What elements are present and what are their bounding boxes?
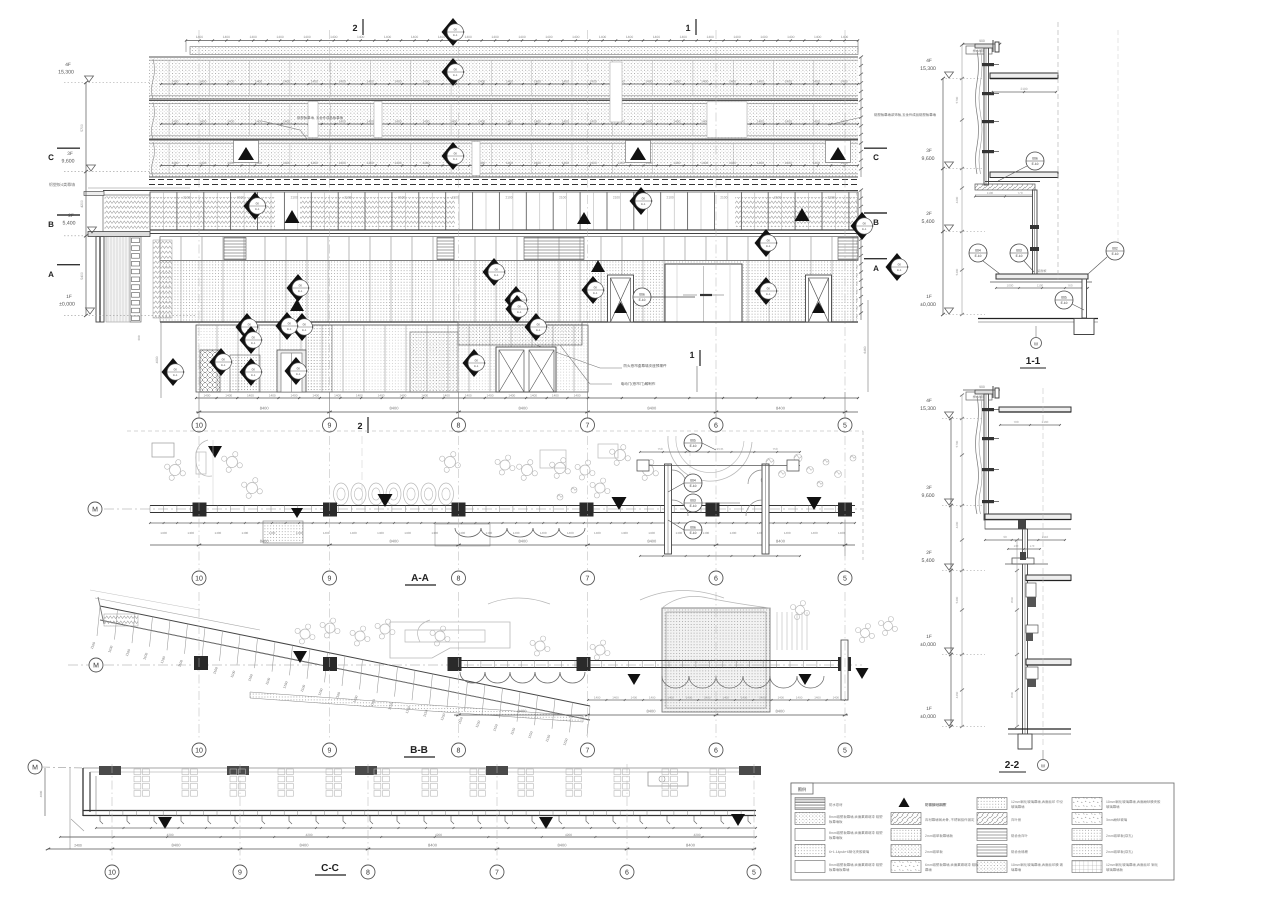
svg-text:板幕墙板: 板幕墙板 — [829, 820, 843, 824]
svg-text:石材幕墙钢龙骨, 不锈钢挂件固定: 石材幕墙钢龙骨, 不锈钢挂件固定 — [925, 818, 975, 822]
svg-text:1400: 1400 — [196, 35, 204, 39]
svg-text:1400: 1400 — [356, 394, 363, 398]
svg-text:1400: 1400 — [594, 696, 601, 700]
svg-text:A: A — [48, 270, 54, 279]
svg-text:6460: 6460 — [863, 346, 867, 353]
svg-text:1400: 1400 — [431, 531, 438, 535]
svg-text:2100: 2100 — [505, 196, 512, 200]
svg-text:1400: 1400 — [562, 120, 569, 124]
svg-text:E-1: E-1 — [298, 289, 303, 293]
svg-text:750: 750 — [855, 306, 859, 311]
svg-text:1400: 1400 — [680, 35, 688, 39]
svg-text:1400: 1400 — [813, 161, 820, 165]
svg-text:006: 006 — [1032, 157, 1038, 161]
svg-text:1F: 1F — [926, 294, 932, 300]
svg-text:1400: 1400 — [411, 35, 419, 39]
svg-text:1400: 1400 — [291, 394, 298, 398]
svg-text:1400: 1400 — [552, 394, 559, 398]
svg-text:1400: 1400 — [283, 120, 290, 124]
svg-text:M: M — [93, 663, 99, 670]
svg-text:1400: 1400 — [626, 35, 634, 39]
svg-text:板幕墙板: 板幕墙板 — [829, 836, 843, 840]
svg-text:600: 600 — [137, 335, 141, 340]
svg-text:750: 750 — [855, 314, 859, 319]
svg-text:8: 8 — [457, 576, 461, 583]
svg-text:1400: 1400 — [214, 531, 221, 535]
svg-text:1400: 1400 — [704, 696, 711, 700]
svg-text:1400: 1400 — [785, 120, 792, 124]
svg-text:玻璃幕墙板: 玻璃幕墙板 — [1106, 868, 1124, 872]
svg-text:2100: 2100 — [291, 196, 298, 200]
svg-text:1400: 1400 — [673, 120, 680, 124]
svg-text:E-1: E-1 — [453, 73, 458, 77]
svg-text:1400: 1400 — [785, 80, 792, 84]
svg-text:10: 10 — [195, 748, 203, 755]
svg-text:8400: 8400 — [260, 406, 270, 411]
svg-text:8: 8 — [366, 870, 370, 877]
svg-text:E-10: E-10 — [1032, 162, 1039, 166]
svg-text:1400: 1400 — [491, 35, 499, 39]
svg-text:1400: 1400 — [813, 80, 820, 84]
svg-text:1400: 1400 — [707, 35, 715, 39]
svg-text:06: 06 — [495, 268, 499, 272]
svg-text:2400: 2400 — [74, 844, 82, 848]
svg-text:4200: 4200 — [565, 833, 572, 837]
svg-text:1400: 1400 — [160, 531, 167, 535]
svg-text:1400: 1400 — [350, 531, 357, 535]
svg-text:E-1: E-1 — [296, 372, 301, 376]
svg-text:1F: 1F — [926, 634, 932, 640]
svg-text:130: 130 — [1014, 544, 1019, 548]
svg-text:1400: 1400 — [394, 120, 401, 124]
svg-text:2100: 2100 — [183, 196, 190, 200]
svg-text:1400: 1400 — [667, 696, 674, 700]
svg-text:±0,000: ±0,000 — [920, 714, 936, 720]
svg-text:1400: 1400 — [247, 394, 254, 398]
svg-text:E-1: E-1 — [766, 292, 771, 296]
svg-text:750: 750 — [855, 207, 859, 212]
svg-text:1400: 1400 — [599, 35, 607, 39]
svg-text:1400: 1400 — [303, 35, 311, 39]
svg-text:1400: 1400 — [813, 120, 820, 124]
svg-text:E-10: E-10 — [1112, 252, 1119, 256]
svg-text:005: 005 — [1061, 296, 1067, 300]
svg-text:1400: 1400 — [757, 120, 764, 124]
svg-text:06: 06 — [303, 323, 307, 327]
svg-text:8400: 8400 — [518, 709, 528, 714]
svg-text:9: 9 — [238, 870, 242, 877]
svg-text:1400: 1400 — [330, 35, 338, 39]
svg-text:1400: 1400 — [187, 531, 194, 535]
svg-text:1400: 1400 — [283, 161, 290, 165]
svg-text:8400: 8400 — [686, 843, 696, 848]
svg-text:1400: 1400 — [421, 394, 428, 398]
svg-text:750: 750 — [855, 289, 859, 294]
svg-text:2-2: 2-2 — [1005, 760, 1020, 771]
svg-text:1000: 1000 — [1007, 284, 1014, 288]
svg-text:06: 06 — [297, 367, 301, 371]
svg-text:1400: 1400 — [323, 531, 330, 535]
svg-text:1400: 1400 — [357, 35, 365, 39]
svg-text:1400: 1400 — [334, 394, 341, 398]
svg-text:2: 2 — [357, 421, 362, 431]
svg-text:铝塑板幕墙装饰板,五金件成品铝塑板幕墙: 铝塑板幕墙装饰板,五金件成品铝塑板幕墙 — [874, 113, 937, 117]
svg-text:06: 06 — [248, 323, 252, 327]
svg-text:8400: 8400 — [776, 539, 786, 544]
svg-text:±0,000: ±0,000 — [59, 302, 75, 308]
svg-text:003: 003 — [690, 499, 696, 503]
svg-text:1400: 1400 — [399, 394, 406, 398]
svg-text:2mm铝单板: 2mm铝单板 — [925, 850, 943, 854]
svg-text:E-1: E-1 — [302, 328, 307, 332]
svg-text:1400: 1400 — [227, 120, 234, 124]
svg-text:1400: 1400 — [269, 531, 276, 535]
svg-text:3560: 3560 — [1010, 596, 1014, 603]
svg-text:1400: 1400 — [443, 394, 450, 398]
svg-text:5: 5 — [752, 870, 756, 877]
svg-text:1400: 1400 — [621, 531, 628, 535]
svg-text:06: 06 — [288, 322, 292, 326]
svg-text:±0,000: ±0,000 — [920, 302, 936, 308]
svg-text:铝合金百叶: 铝合金百叶 — [1011, 834, 1029, 838]
svg-text:06: 06 — [594, 286, 598, 290]
svg-text:4200: 4200 — [80, 200, 84, 208]
svg-text:004: 004 — [975, 249, 981, 253]
svg-text:1400: 1400 — [673, 80, 680, 84]
svg-text:1400: 1400 — [534, 161, 541, 165]
svg-text:1400: 1400 — [296, 531, 303, 535]
svg-text:5,400: 5,400 — [63, 221, 76, 227]
svg-text:12mm钢化玻璃幕墙,表面丝印 中空: 12mm钢化玻璃幕墙,表面丝印 中空 — [1011, 800, 1064, 804]
svg-text:9: 9 — [328, 423, 332, 430]
svg-text:1400: 1400 — [367, 80, 374, 84]
svg-text:4200: 4200 — [955, 196, 959, 203]
svg-text:1400: 1400 — [612, 696, 619, 700]
svg-text:铝塑板4类幕墙: 铝塑板4类幕墙 — [49, 182, 75, 187]
svg-text:C-C: C-C — [321, 863, 339, 874]
svg-text:铝塑板: 铝塑板 — [1037, 269, 1046, 273]
svg-text:C: C — [873, 153, 879, 162]
svg-text:9,600: 9,600 — [922, 493, 935, 499]
svg-text:06: 06 — [518, 305, 522, 309]
svg-text:750: 750 — [772, 447, 777, 451]
svg-text:1400: 1400 — [203, 394, 210, 398]
svg-text:E-1: E-1 — [517, 310, 522, 314]
svg-text:1400: 1400 — [645, 80, 652, 84]
svg-text:1400: 1400 — [478, 80, 485, 84]
svg-text:1400: 1400 — [506, 120, 513, 124]
svg-text:006: 006 — [690, 526, 696, 530]
svg-text:1400: 1400 — [458, 531, 465, 535]
svg-text:玻璃幕墙: 玻璃幕墙 — [1106, 805, 1120, 809]
svg-text:750: 750 — [855, 240, 859, 245]
svg-text:B: B — [48, 220, 54, 229]
svg-text:06: 06 — [642, 197, 646, 201]
svg-text:1400: 1400 — [311, 161, 318, 165]
svg-text:8mm铝塑板幕墙,表面氟碳喀漆 铝塑: 8mm铝塑板幕墙,表面氟碳喀漆 铝塑 — [829, 863, 883, 867]
svg-text:06: 06 — [767, 287, 771, 291]
svg-text:06: 06 — [299, 284, 303, 288]
svg-text:06: 06 — [898, 263, 902, 267]
svg-text:06: 06 — [252, 368, 256, 372]
svg-text:2100: 2100 — [344, 196, 351, 200]
svg-text:8400: 8400 — [428, 843, 438, 848]
svg-text:8400: 8400 — [390, 539, 400, 544]
svg-text:E-10: E-10 — [690, 531, 697, 535]
svg-text:4F: 4F — [926, 398, 932, 404]
svg-text:1-1: 1-1 — [1026, 356, 1041, 367]
svg-text:5400: 5400 — [955, 596, 959, 603]
svg-text:防雷接地装置: 防雷接地装置 — [925, 802, 947, 807]
svg-text:B: B — [873, 218, 879, 227]
svg-text:E-1: E-1 — [897, 268, 902, 272]
svg-text:6mm铝塑板幕墙,表面氟碳喀漆 铝板: 6mm铝塑板幕墙,表面氟碳喀漆 铝板 — [925, 863, 979, 867]
svg-text:8400: 8400 — [776, 709, 786, 714]
svg-text:1400: 1400 — [223, 35, 231, 39]
svg-text:1400: 1400 — [574, 394, 581, 398]
svg-text:004: 004 — [690, 479, 696, 483]
svg-text:15,300: 15,300 — [58, 70, 74, 76]
svg-text:8400: 8400 — [647, 709, 657, 714]
svg-text:006: 006 — [639, 293, 645, 297]
svg-text:1400: 1400 — [741, 696, 748, 700]
svg-text:E-1: E-1 — [251, 373, 256, 377]
svg-text:E-1: E-1 — [474, 364, 479, 368]
svg-text:1400: 1400 — [759, 696, 766, 700]
svg-text:2100: 2100 — [720, 196, 727, 200]
svg-text:1400: 1400 — [378, 394, 385, 398]
svg-text:3500: 3500 — [1010, 691, 1014, 698]
svg-text:3F: 3F — [926, 485, 932, 491]
svg-text:4460: 4460 — [955, 691, 959, 698]
svg-text:750: 750 — [855, 256, 859, 261]
svg-text:3F: 3F — [926, 148, 932, 154]
svg-text:2mm铝单板(穿孔): 2mm铝单板(穿孔) — [1106, 850, 1133, 854]
svg-text:1400: 1400 — [171, 161, 178, 165]
svg-text:1400: 1400 — [649, 696, 656, 700]
svg-text:1400: 1400 — [730, 531, 737, 535]
svg-text:1400: 1400 — [478, 120, 485, 124]
svg-text:2160: 2160 — [1042, 420, 1049, 424]
svg-text:1400: 1400 — [513, 531, 520, 535]
svg-text:1400: 1400 — [617, 161, 624, 165]
svg-text:1400: 1400 — [242, 531, 249, 535]
svg-text:1F: 1F — [66, 294, 72, 300]
svg-text:2100: 2100 — [667, 196, 674, 200]
svg-text:1400: 1400 — [534, 80, 541, 84]
svg-text:E-1: E-1 — [453, 33, 458, 37]
svg-text:1400: 1400 — [648, 531, 655, 535]
svg-text:5: 5 — [843, 423, 847, 430]
svg-text:1400: 1400 — [283, 80, 290, 84]
svg-text:1400: 1400 — [814, 35, 822, 39]
svg-text:12mm钢化玻璃幕墙,表面丝印 钢化: 12mm钢化玻璃幕墙,表面丝印 钢化 — [1106, 863, 1159, 867]
svg-text:1400: 1400 — [572, 35, 580, 39]
svg-text:6+1.14pvb+6钢化夹胶玻璃: 6+1.14pvb+6钢化夹胶玻璃 — [829, 850, 870, 854]
svg-text:百叶窗: 百叶窗 — [1011, 818, 1022, 822]
svg-text:板幕墙板幕墙: 板幕墙板幕墙 — [829, 868, 850, 872]
svg-text:A: A — [873, 264, 879, 273]
svg-text:1400: 1400 — [701, 80, 708, 84]
svg-text:1: 1 — [685, 23, 690, 33]
svg-text:8: 8 — [457, 423, 461, 430]
svg-text:750: 750 — [855, 273, 859, 278]
svg-text:2100: 2100 — [452, 196, 459, 200]
svg-text:1400: 1400 — [645, 120, 652, 124]
svg-text:2mm铝单板(穿孔): 2mm铝单板(穿孔) — [1106, 834, 1133, 838]
svg-text:06: 06 — [454, 152, 458, 156]
svg-text:1400: 1400 — [757, 80, 764, 84]
svg-text:15,300: 15,300 — [920, 66, 936, 72]
svg-text:1400: 1400 — [796, 696, 803, 700]
svg-text:1400: 1400 — [171, 80, 178, 84]
svg-text:5: 5 — [843, 748, 847, 755]
svg-text:770: 770 — [1017, 191, 1022, 195]
svg-text:1400: 1400 — [339, 80, 346, 84]
svg-text:2F: 2F — [68, 213, 74, 219]
svg-text:2F: 2F — [926, 211, 932, 217]
svg-text:06: 06 — [537, 323, 541, 327]
svg-text:4000: 4000 — [155, 356, 159, 363]
svg-text:1400: 1400 — [590, 161, 597, 165]
svg-text:E-1: E-1 — [255, 207, 260, 211]
svg-text:E-10: E-10 — [690, 484, 697, 488]
svg-text:1400: 1400 — [518, 35, 526, 39]
svg-text:1400: 1400 — [787, 35, 795, 39]
svg-text:4200: 4200 — [435, 833, 442, 837]
svg-text:1400: 1400 — [225, 394, 232, 398]
svg-text:铝塑板幕墙, 五金件成品板幕墙: 铝塑板幕墙, 五金件成品板幕墙 — [297, 116, 344, 120]
svg-text:9: 9 — [328, 576, 332, 583]
svg-text:8400: 8400 — [390, 406, 400, 411]
svg-text:1400: 1400 — [562, 80, 569, 84]
svg-text:1400: 1400 — [703, 531, 710, 535]
svg-text:700: 700 — [1013, 420, 1018, 424]
svg-text:2100: 2100 — [613, 196, 620, 200]
svg-text:1400: 1400 — [653, 35, 661, 39]
svg-text:7: 7 — [586, 748, 590, 755]
svg-text:1400: 1400 — [339, 120, 346, 124]
svg-text:E-10: E-10 — [639, 298, 646, 302]
svg-text:8mm铝塑板幕墙,表面氟碳喀漆 铝塑: 8mm铝塑板幕墙,表面氟碳喀漆 铝塑 — [829, 815, 883, 819]
svg-text:5700: 5700 — [955, 440, 959, 447]
svg-text:7: 7 — [586, 423, 590, 430]
svg-text:005: 005 — [690, 439, 696, 443]
svg-text:E-1: E-1 — [221, 363, 226, 367]
svg-text:1400: 1400 — [814, 696, 821, 700]
svg-text:E-1: E-1 — [251, 341, 256, 345]
svg-text:2100: 2100 — [237, 196, 244, 200]
svg-text:E-1: E-1 — [766, 244, 771, 248]
svg-text:1400: 1400 — [838, 531, 845, 535]
svg-text:8400: 8400 — [519, 539, 529, 544]
svg-text:10: 10 — [108, 870, 116, 877]
svg-text:06: 06 — [863, 222, 867, 226]
svg-text:1: 1 — [689, 350, 694, 360]
svg-text:1400: 1400 — [438, 35, 446, 39]
svg-text:760: 760 — [1067, 284, 1072, 288]
svg-text:E-1: E-1 — [536, 328, 541, 332]
svg-text:1400: 1400 — [540, 531, 547, 535]
svg-text:1400: 1400 — [227, 80, 234, 84]
svg-text:2100: 2100 — [398, 196, 405, 200]
svg-text:1400: 1400 — [545, 35, 553, 39]
svg-text:2F: 2F — [926, 550, 932, 556]
svg-text:6: 6 — [714, 576, 718, 583]
svg-text:1100: 1100 — [1037, 284, 1044, 288]
svg-text:1400: 1400 — [506, 80, 513, 84]
svg-text:6: 6 — [714, 423, 718, 430]
svg-text:1400: 1400 — [530, 394, 537, 398]
svg-text:5700: 5700 — [955, 96, 959, 103]
svg-text:1400: 1400 — [404, 531, 411, 535]
svg-text:8: 8 — [457, 748, 461, 755]
svg-text:6: 6 — [714, 748, 718, 755]
svg-text:1400: 1400 — [199, 161, 206, 165]
svg-text:1400: 1400 — [384, 35, 392, 39]
svg-text:1400: 1400 — [760, 35, 768, 39]
svg-text:8400: 8400 — [519, 406, 529, 411]
svg-text:750: 750 — [855, 281, 859, 286]
svg-text:玻璃幕墙: 玻璃幕墙 — [1011, 805, 1025, 809]
svg-text:1400: 1400 — [199, 120, 206, 124]
svg-text:B-B: B-B — [410, 745, 428, 756]
svg-text:1400: 1400 — [675, 531, 682, 535]
svg-text:1400: 1400 — [686, 696, 693, 700]
svg-text:5400: 5400 — [955, 268, 959, 275]
svg-text:1400: 1400 — [833, 696, 840, 700]
svg-text:4200: 4200 — [955, 521, 959, 528]
svg-text:E-1: E-1 — [173, 373, 178, 377]
svg-text:06: 06 — [252, 336, 256, 340]
svg-text:06: 06 — [454, 68, 458, 72]
svg-text:1400: 1400 — [339, 161, 346, 165]
svg-text:E-10: E-10 — [1061, 301, 1068, 305]
svg-text:003: 003 — [1016, 249, 1022, 253]
svg-text:1400: 1400 — [722, 696, 729, 700]
svg-text:1400: 1400 — [567, 531, 574, 535]
svg-text:750: 750 — [657, 447, 662, 451]
svg-text:1400: 1400 — [841, 35, 849, 39]
svg-text:8400: 8400 — [647, 406, 657, 411]
svg-text:5: 5 — [843, 576, 847, 583]
svg-text:750: 750 — [855, 248, 859, 253]
svg-text:4000: 4000 — [39, 790, 43, 797]
svg-text:2100: 2100 — [559, 196, 566, 200]
svg-text:1400: 1400 — [377, 531, 384, 535]
svg-text:4F: 4F — [65, 62, 71, 68]
svg-text:750: 750 — [855, 199, 859, 204]
svg-text:10: 10 — [195, 576, 203, 583]
svg-text:1400: 1400 — [631, 696, 638, 700]
svg-text:1400: 1400 — [255, 120, 262, 124]
svg-text:9,600: 9,600 — [922, 156, 935, 162]
svg-text:图例: 图例 — [798, 787, 806, 792]
svg-text:7: 7 — [586, 576, 590, 583]
svg-text:1400: 1400 — [465, 35, 473, 39]
svg-text:E-10: E-10 — [690, 504, 697, 508]
svg-text:06: 06 — [222, 358, 226, 362]
svg-text:10mm钢化玻璃幕墙,表面磨砂膜夹胶: 10mm钢化玻璃幕墙,表面磨砂膜夹胶 — [1106, 800, 1161, 804]
svg-text:8mm铝塑板幕墙,表面氟碳喀漆 铝塑: 8mm铝塑板幕墙,表面氟碳喀漆 铝塑 — [829, 831, 883, 835]
svg-text:8400: 8400 — [776, 406, 786, 411]
svg-text:3mm磨砂玻璃: 3mm磨砂玻璃 — [1106, 818, 1128, 822]
svg-text:1400: 1400 — [729, 80, 736, 84]
svg-text:1400: 1400 — [255, 80, 262, 84]
svg-text:1400: 1400 — [594, 531, 601, 535]
svg-text:1400: 1400 — [841, 80, 848, 84]
svg-text:1400: 1400 — [534, 120, 541, 124]
